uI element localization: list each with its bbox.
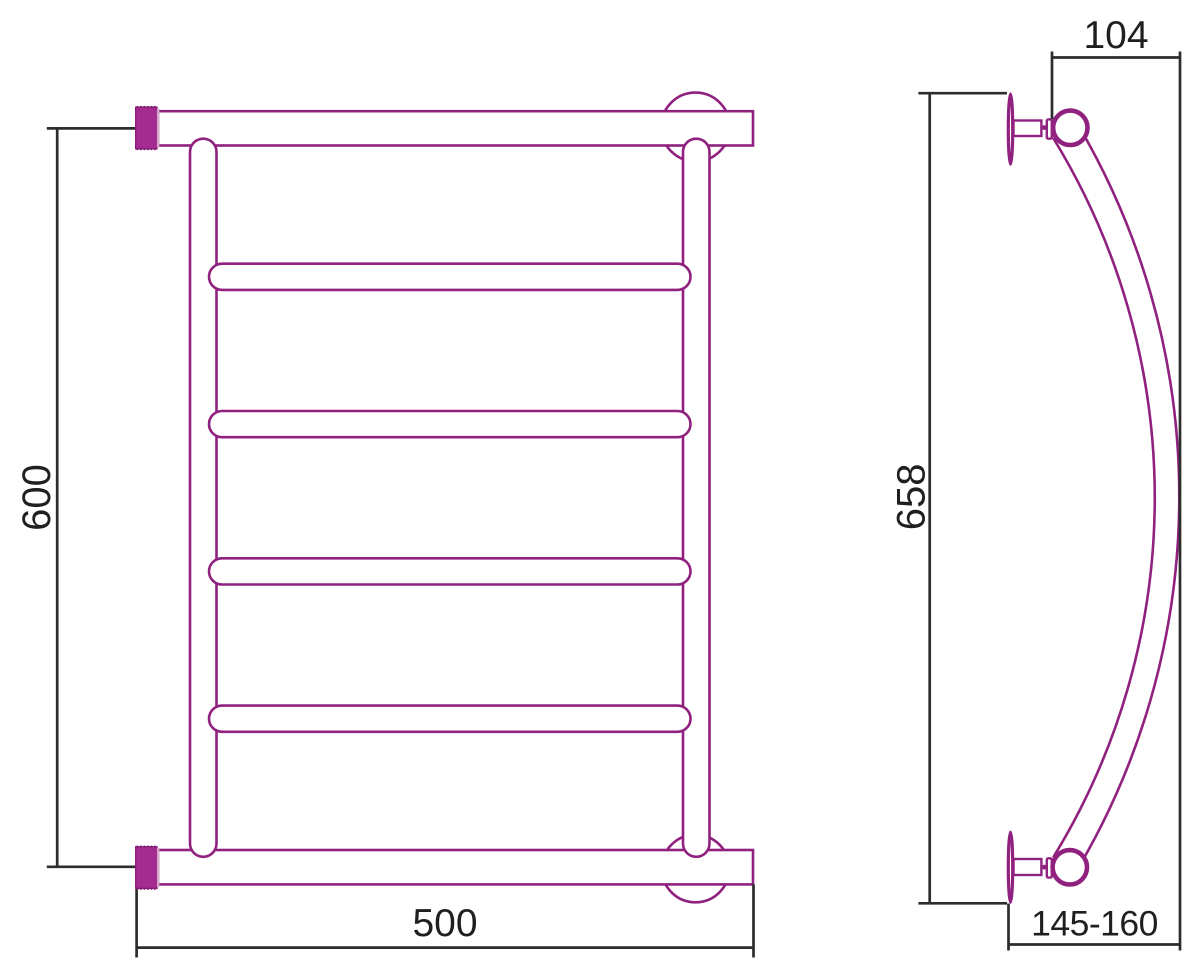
svg-text:658: 658 [890,464,934,531]
svg-text:600: 600 [15,464,59,531]
svg-text:145-160: 145-160 [1031,904,1158,944]
svg-text:104: 104 [1083,14,1148,57]
svg-text:500: 500 [412,902,477,945]
